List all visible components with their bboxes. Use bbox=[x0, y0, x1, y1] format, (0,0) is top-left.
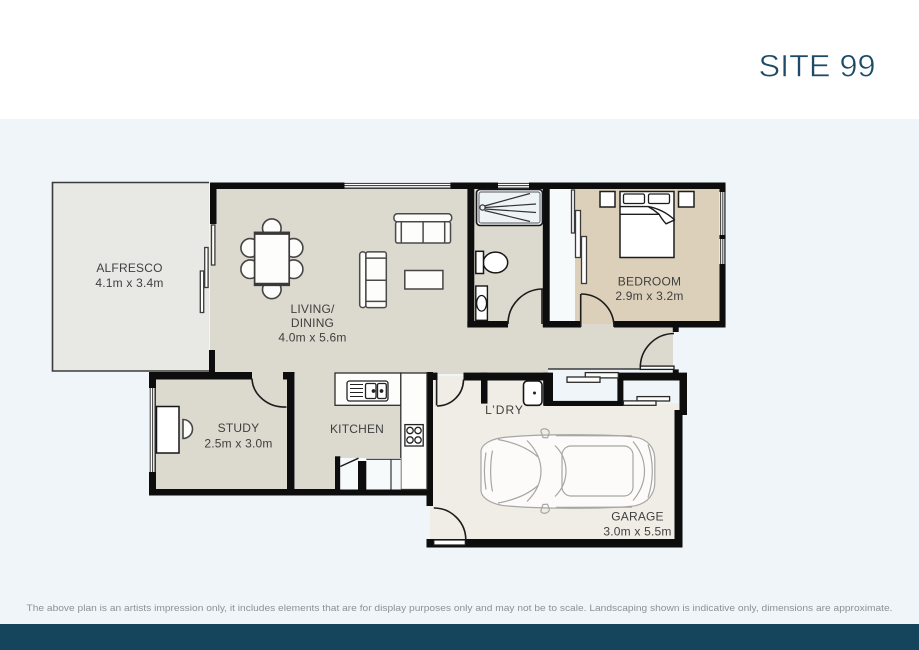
svg-text:ALFRESCO: ALFRESCO bbox=[96, 261, 162, 275]
svg-text:BEDROOM: BEDROOM bbox=[618, 275, 681, 289]
svg-text:SITE 99: SITE 99 bbox=[759, 48, 876, 84]
svg-text:L’DRY: L’DRY bbox=[485, 403, 524, 417]
svg-text:DINING: DINING bbox=[291, 316, 334, 330]
svg-text:3.0m x 5.5m: 3.0m x 5.5m bbox=[603, 525, 671, 539]
svg-text:The above plan is an artists i: The above plan is an artists impression … bbox=[27, 603, 893, 614]
svg-text:STUDY: STUDY bbox=[218, 421, 260, 435]
svg-text:LIVING/: LIVING/ bbox=[290, 302, 335, 316]
svg-text:4.1m x 3.4m: 4.1m x 3.4m bbox=[95, 276, 163, 290]
svg-text:GARAGE: GARAGE bbox=[611, 510, 664, 524]
svg-text:4.0m x 5.6m: 4.0m x 5.6m bbox=[278, 331, 346, 345]
svg-text:2.5m x 3.0m: 2.5m x 3.0m bbox=[204, 437, 272, 451]
svg-text:2.9m x 3.2m: 2.9m x 3.2m bbox=[615, 289, 683, 303]
svg-text:KITCHEN: KITCHEN bbox=[330, 422, 384, 436]
